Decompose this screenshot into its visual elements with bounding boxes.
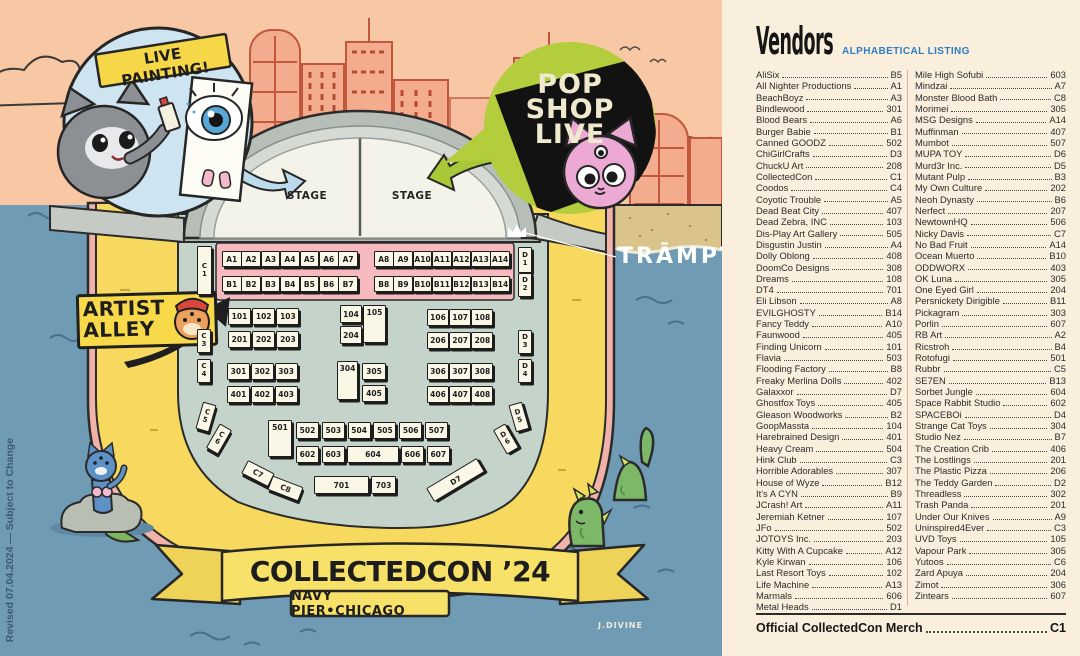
booth-B12: B12 bbox=[452, 276, 472, 292]
vendor-booth: A7 bbox=[1055, 81, 1066, 90]
vendor-name: Life Machine bbox=[756, 580, 809, 589]
vendor-row: JFo502 bbox=[756, 521, 902, 532]
official-merch-row: Official CollectedCon Merch C1 bbox=[756, 621, 1066, 635]
dot-leader bbox=[814, 133, 888, 134]
booth-A2: A2 bbox=[241, 251, 261, 267]
vendor-name: Kyle Kirwan bbox=[756, 557, 806, 566]
vendor-row: Sorbet Jungle604 bbox=[915, 385, 1066, 396]
dot-leader bbox=[840, 235, 883, 236]
booth-A12: A12 bbox=[452, 251, 472, 267]
booth-B1: B1 bbox=[222, 276, 242, 292]
vendor-row: Zard Apuya204 bbox=[915, 566, 1066, 577]
vendor-name: Heavy Cream bbox=[756, 444, 813, 453]
dot-leader bbox=[846, 553, 882, 554]
vendor-row: BeachBoyzA3 bbox=[756, 91, 902, 102]
vendor-name: NewtownHQ bbox=[915, 217, 968, 226]
vendor-booth: 305 bbox=[1050, 104, 1066, 113]
vendor-name: Trash Panda bbox=[915, 500, 968, 509]
booth-408: 408 bbox=[471, 386, 493, 403]
vendor-booth: 204 bbox=[1050, 285, 1066, 294]
dot-leader bbox=[828, 519, 884, 520]
vendor-booth: D6 bbox=[1054, 149, 1066, 158]
dot-leader bbox=[993, 519, 1052, 520]
booth-B10: B10 bbox=[413, 276, 433, 292]
dot-leader bbox=[971, 507, 1047, 508]
vendor-booth: 204 bbox=[1050, 568, 1066, 577]
vendor-name: Flavia bbox=[756, 353, 781, 362]
vendor-booth: A12 bbox=[885, 546, 902, 555]
vendor-row: JCrash! ArtA11 bbox=[756, 498, 902, 509]
vendor-booth: 108 bbox=[886, 274, 902, 283]
vendor-booth: 208 bbox=[886, 161, 902, 170]
vendor-row: OK Luna305 bbox=[915, 272, 1066, 283]
booth-208: 208 bbox=[471, 332, 493, 349]
revision-note: Revised 07.04.2024 — Subject to Change bbox=[4, 438, 16, 642]
booth-A10: A10 bbox=[413, 251, 433, 267]
vendor-booth: 406 bbox=[1050, 444, 1066, 453]
vendor-name: Galaxxor bbox=[756, 387, 794, 396]
vendor-booth: B5 bbox=[891, 70, 902, 79]
booth-A6: A6 bbox=[319, 251, 339, 267]
vendor-row: Pickagram303 bbox=[915, 306, 1066, 317]
vendor-booth: D3 bbox=[890, 149, 902, 158]
vendor-row: ODDWORX403 bbox=[915, 261, 1066, 272]
vendor-row: Flooding FactoryB8 bbox=[756, 363, 902, 374]
vendor-booth: 105 bbox=[1050, 534, 1066, 543]
vendor-row: Bindlewood301 bbox=[756, 102, 902, 113]
vendor-booth: 407 bbox=[886, 206, 902, 215]
vendor-booth: B1 bbox=[891, 127, 902, 136]
booth-402: 402 bbox=[251, 386, 274, 403]
vendor-name: Dis-Play Art Gallery bbox=[756, 229, 837, 238]
vendor-name: ChuckU Art bbox=[756, 161, 803, 170]
vendor-row: RicstrohB4 bbox=[915, 340, 1066, 351]
vendor-booth: 604 bbox=[1050, 387, 1066, 396]
vendor-booth: 502 bbox=[886, 138, 902, 147]
vendor-booth: A11 bbox=[886, 500, 902, 509]
vendor-booth: 107 bbox=[886, 512, 902, 521]
vendor-row: CoodosC4 bbox=[756, 181, 902, 192]
vendor-row: No Bad FruitA14 bbox=[915, 238, 1066, 249]
vendor-name: Ocean Muerto bbox=[915, 251, 974, 260]
dot-leader bbox=[836, 473, 883, 474]
dot-leader bbox=[995, 485, 1051, 486]
vendor-name: UVD Toys bbox=[915, 534, 957, 543]
vendor-name: Flooding Factory bbox=[756, 364, 826, 373]
vendor-row: Monster Blood BathC8 bbox=[915, 91, 1066, 102]
dot-leader bbox=[977, 201, 1052, 202]
official-merch-booth: C1 bbox=[1050, 621, 1066, 635]
vendor-row: The Teddy GardenD2 bbox=[915, 476, 1066, 487]
dot-leader bbox=[965, 417, 1051, 418]
vendor-name: GoopMassta bbox=[756, 421, 809, 430]
vendor-booth: 402 bbox=[886, 376, 902, 385]
vendor-row: Neoh DynastyB6 bbox=[915, 193, 1066, 204]
vendor-name: Kitty With A Cupcake bbox=[756, 546, 843, 555]
booth-D2: D 2 bbox=[518, 273, 532, 297]
vendor-row: House of WyzeB12 bbox=[756, 476, 902, 487]
vendor-booth: 405 bbox=[886, 330, 902, 339]
booth-403: 403 bbox=[275, 386, 298, 403]
vendor-name: Zard Apuya bbox=[915, 568, 963, 577]
dot-leader bbox=[777, 292, 884, 293]
booth-C4: C 4 bbox=[197, 359, 211, 383]
vendor-booth: B3 bbox=[1055, 172, 1066, 181]
dot-leader bbox=[829, 371, 888, 372]
vendor-name: Mutant Pulp bbox=[915, 172, 965, 181]
vendor-name: Mile High Sofubi bbox=[915, 70, 983, 79]
official-merch-label: Official CollectedCon Merch bbox=[756, 621, 923, 635]
dot-leader bbox=[812, 609, 887, 610]
vendor-name: DT4 bbox=[756, 285, 774, 294]
dot-leader bbox=[951, 111, 1047, 112]
vendor-name: Jeremiah Ketner bbox=[756, 512, 825, 521]
vendor-booth: D4 bbox=[1054, 410, 1066, 419]
vendor-name: ODDWORX bbox=[915, 263, 965, 272]
vendor-name: Yutoos bbox=[915, 557, 944, 566]
dot-leader bbox=[854, 88, 887, 89]
vendor-row: One Eyed Girl204 bbox=[915, 283, 1066, 294]
vendor-name: Eli Libson bbox=[756, 296, 797, 305]
booth-107: 107 bbox=[449, 309, 471, 326]
vendor-booth: 207 bbox=[1050, 206, 1066, 215]
vendor-booth: 506 bbox=[1050, 217, 1066, 226]
booth-106: 106 bbox=[427, 309, 449, 326]
vendor-row: Murd3r Inc.D5 bbox=[915, 159, 1066, 170]
vendor-row: Mile High Sofubi603 bbox=[915, 68, 1066, 79]
vendor-name: Strange Cat Toys bbox=[915, 421, 987, 430]
dot-leader bbox=[949, 383, 1047, 384]
booth-B14: B14 bbox=[490, 276, 510, 292]
vendor-name: One Eyed Girl bbox=[915, 285, 974, 294]
vendor-booth: 203 bbox=[886, 534, 902, 543]
dot-leader bbox=[985, 190, 1047, 191]
vendor-booth: A10 bbox=[885, 319, 902, 328]
vendor-row: Porlin607 bbox=[915, 317, 1066, 328]
vendor-name: Fancy Teddy bbox=[756, 319, 809, 328]
vendor-row: Marmals606 bbox=[756, 589, 902, 600]
vendor-name: House of Wyze bbox=[756, 478, 819, 487]
vendor-booth: D2 bbox=[1054, 478, 1066, 487]
booth-602: 602 bbox=[296, 446, 319, 463]
vendor-row: Hink ClubC3 bbox=[756, 453, 902, 464]
vendor-row: MSG DesignsA14 bbox=[915, 113, 1066, 124]
vendor-name: Rubbr bbox=[915, 364, 941, 373]
booth-304: 304 bbox=[337, 361, 358, 400]
vendor-row: The Plastic Pizza206 bbox=[915, 464, 1066, 475]
dot-leader bbox=[816, 451, 883, 452]
vendor-booth: 102 bbox=[886, 568, 902, 577]
booth-405: 405 bbox=[362, 385, 386, 402]
dot-leader bbox=[955, 281, 1047, 282]
vendor-booth: B12 bbox=[885, 478, 902, 487]
artist-alley-label: ARTIST ALLEY bbox=[82, 297, 179, 342]
vendor-booth: C3 bbox=[1054, 523, 1066, 532]
vendor-row: Under Our KnivesA9 bbox=[915, 510, 1066, 521]
vendor-name: Morimei bbox=[915, 104, 948, 113]
booth-305: 305 bbox=[362, 363, 386, 380]
event-location: NAVY PIER•CHICAGO bbox=[291, 591, 449, 616]
vendor-name: RB Art bbox=[915, 330, 942, 339]
vendor-booth: 701 bbox=[886, 285, 902, 294]
booth-103: 103 bbox=[276, 308, 299, 325]
vendor-booth: 304 bbox=[1050, 421, 1066, 430]
vendor-booth: C4 bbox=[890, 183, 902, 192]
vendor-name: SE7EN bbox=[915, 376, 946, 385]
vendor-row: Zimot306 bbox=[915, 578, 1066, 589]
dot-leader bbox=[801, 496, 888, 497]
vendor-name: Dolly Oblong bbox=[756, 251, 810, 260]
vendor-row: Freaky Merlina Dolls402 bbox=[756, 374, 902, 385]
booth-307: 307 bbox=[449, 363, 471, 380]
vendor-row: RB ArtA2 bbox=[915, 329, 1066, 340]
vendor-name: Under Our Knives bbox=[915, 512, 990, 521]
vendor-name: JCrash! Art bbox=[756, 500, 802, 509]
vendor-name: Nicky Davis bbox=[915, 229, 964, 238]
vendor-columns: AliSixB5All Nighter ProductionsA1BeachBo… bbox=[756, 68, 1066, 612]
dot-leader bbox=[971, 247, 1047, 248]
vendor-name: Metal Heads bbox=[756, 602, 809, 611]
vendor-name: Porlin bbox=[915, 319, 939, 328]
vendor-booth: A4 bbox=[891, 240, 902, 249]
booth-507: 507 bbox=[425, 422, 448, 439]
vendor-row: Last Resort Toys102 bbox=[756, 566, 902, 577]
vendor-name: JOTOYS Inc. bbox=[756, 534, 811, 543]
vendor-name: Zintears bbox=[915, 591, 949, 600]
vendor-row: Metal HeadsD1 bbox=[756, 600, 902, 611]
dot-leader bbox=[814, 541, 883, 542]
vendor-name: Coyotic Trouble bbox=[756, 195, 821, 204]
dot-leader bbox=[782, 77, 887, 78]
booth-302: 302 bbox=[251, 363, 274, 380]
booth-603: 603 bbox=[322, 446, 345, 463]
vendor-row: Coyotic TroubleA5 bbox=[756, 193, 902, 204]
dot-leader bbox=[800, 303, 888, 304]
dot-leader bbox=[971, 224, 1048, 225]
vendor-name: It's A CYN bbox=[756, 489, 798, 498]
stage-right-label: STAGE bbox=[386, 190, 438, 202]
booth-A13: A13 bbox=[471, 251, 491, 267]
dot-leader bbox=[964, 496, 1047, 497]
dot-leader bbox=[987, 530, 1051, 531]
dot-leader bbox=[1003, 303, 1047, 304]
booth-D1: D 1 bbox=[518, 247, 532, 273]
vendor-booth: 507 bbox=[1050, 138, 1066, 147]
vendor-name: My Own Culture bbox=[915, 183, 982, 192]
booth-701: 701 bbox=[314, 476, 369, 494]
vendor-name: Sorbet Jungle bbox=[915, 387, 973, 396]
booth-503: 503 bbox=[322, 422, 345, 439]
vendor-booth: 305 bbox=[1050, 274, 1066, 283]
vendor-booth: A9 bbox=[1055, 512, 1066, 521]
dot-leader bbox=[832, 269, 883, 270]
vendor-row: My Own Culture202 bbox=[915, 181, 1066, 192]
vendor-booth: 104 bbox=[886, 421, 902, 430]
dot-leader bbox=[797, 394, 888, 395]
dot-leader bbox=[942, 326, 1047, 327]
dot-leader bbox=[962, 133, 1048, 134]
vendor-row: Persnickety DirigibleB11 bbox=[915, 295, 1066, 306]
vendor-booth: 606 bbox=[886, 591, 902, 600]
vendor-row: DoomCo Designs308 bbox=[756, 261, 902, 272]
vendor-booth: B4 bbox=[1055, 342, 1066, 351]
vendor-booth: 206 bbox=[1050, 466, 1066, 475]
booth-B3: B3 bbox=[261, 276, 281, 292]
vendor-name: Ghostfox Toys bbox=[756, 398, 815, 407]
dot-leader bbox=[825, 247, 888, 248]
dot-leader bbox=[977, 258, 1046, 259]
vendor-name: Burger Babie bbox=[756, 127, 811, 136]
vendor-row: RubbrC5 bbox=[915, 363, 1066, 374]
vendor-name: No Bad Fruit bbox=[915, 240, 968, 249]
dot-leader bbox=[952, 598, 1047, 599]
vendor-name: Dead Beat City bbox=[756, 206, 819, 215]
vendor-row: Space Rabbit Studio602 bbox=[915, 397, 1066, 408]
vendor-name: SPACEBOi bbox=[915, 410, 962, 419]
dot-leader bbox=[792, 281, 884, 282]
vendor-name: Coodos bbox=[756, 183, 788, 192]
vendors-title: Vendors bbox=[756, 22, 833, 60]
booth-B6: B6 bbox=[319, 276, 339, 292]
dot-leader bbox=[1000, 99, 1051, 100]
booth-504: 504 bbox=[348, 422, 371, 439]
vendor-booth: 302 bbox=[1050, 489, 1066, 498]
booth-505: 505 bbox=[373, 422, 396, 439]
vendor-row: Harebrained Design401 bbox=[756, 431, 902, 442]
vendor-row: Trash Panda201 bbox=[915, 498, 1066, 509]
vendor-booth: 201 bbox=[1050, 455, 1066, 464]
vendor-booth: 307 bbox=[886, 466, 902, 475]
vendor-row: Jeremiah Ketner107 bbox=[756, 510, 902, 521]
booth-406: 406 bbox=[427, 386, 449, 403]
dot-leader bbox=[784, 360, 883, 361]
vendor-row: The Creation Crib406 bbox=[915, 442, 1066, 453]
vendor-name: All Nighter Productions bbox=[756, 81, 851, 90]
vendor-name: JFo bbox=[756, 523, 772, 532]
vendor-booth: D5 bbox=[1054, 161, 1066, 170]
booth-A5: A5 bbox=[300, 251, 320, 267]
booth-A9: A9 bbox=[393, 251, 413, 267]
dot-leader bbox=[829, 145, 884, 146]
dot-leader bbox=[969, 553, 1047, 554]
vendor-name: AliSix bbox=[756, 70, 779, 79]
vendor-booth: D1 bbox=[890, 602, 902, 611]
vendor-row: Dis-Play Art Gallery505 bbox=[756, 227, 902, 238]
vendor-row: Life MachineA13 bbox=[756, 578, 902, 589]
vendor-row: Kitty With A CupcakeA12 bbox=[756, 544, 902, 555]
dot-leader bbox=[819, 315, 882, 316]
vendor-row: GoopMassta104 bbox=[756, 419, 902, 430]
booth-108: 108 bbox=[471, 309, 493, 326]
vendor-booth: A14 bbox=[1049, 240, 1066, 249]
vendor-list-panel: Vendors ALPHABETICAL LISTING AliSixB5All… bbox=[722, 0, 1080, 656]
dot-leader bbox=[830, 224, 883, 225]
dot-leader bbox=[822, 213, 883, 214]
vendor-booth: 504 bbox=[886, 444, 902, 453]
dot-leader bbox=[964, 439, 1052, 440]
vendor-booth: B14 bbox=[885, 308, 902, 317]
vendor-booth: B8 bbox=[891, 364, 902, 373]
dot-leader bbox=[845, 417, 887, 418]
vendor-booth: 607 bbox=[1050, 319, 1066, 328]
dot-leader bbox=[810, 122, 887, 123]
vendor-booth: 308 bbox=[886, 263, 902, 272]
dot-leader bbox=[977, 292, 1047, 293]
booth-506: 506 bbox=[399, 422, 422, 439]
booth-306: 306 bbox=[427, 363, 449, 380]
dot-leader bbox=[813, 258, 884, 259]
vendor-name: MUPA TOY bbox=[915, 149, 962, 158]
vendor-booth: B11 bbox=[1050, 296, 1066, 305]
dot-leader bbox=[966, 575, 1047, 576]
vendor-booth: 103 bbox=[886, 217, 902, 226]
vendor-row: It's A CYNB9 bbox=[756, 487, 902, 498]
vendor-row: Fancy TeddyA10 bbox=[756, 317, 902, 328]
vendor-column-left: AliSixB5All Nighter ProductionsA1BeachBo… bbox=[756, 68, 902, 612]
vendor-row: Faunwood405 bbox=[756, 329, 902, 340]
vendor-name: Persnickety Dirigible bbox=[915, 296, 1000, 305]
booth-B13: B13 bbox=[471, 276, 491, 292]
vendor-booth: 505 bbox=[886, 229, 902, 238]
dot-leader bbox=[976, 122, 1046, 123]
vendor-name: Zimot bbox=[915, 580, 938, 589]
booth-A8: A8 bbox=[374, 251, 394, 267]
dot-leader bbox=[947, 564, 1051, 565]
dot-leader bbox=[953, 360, 1047, 361]
vendor-booth: 106 bbox=[886, 557, 902, 566]
vendor-name: Murd3r Inc. bbox=[915, 161, 962, 170]
vendor-row: DT4701 bbox=[756, 283, 902, 294]
vendor-row: Dreams108 bbox=[756, 272, 902, 283]
vendor-row: Gleason WoodworksB2 bbox=[756, 408, 902, 419]
vendor-name: Monster Blood Bath bbox=[915, 93, 997, 102]
dot-leader bbox=[803, 337, 884, 338]
vendors-subtitle: ALPHABETICAL LISTING bbox=[842, 46, 970, 57]
booth-B8: B8 bbox=[374, 276, 394, 292]
booth-301: 301 bbox=[227, 363, 250, 380]
dot-leader bbox=[806, 167, 883, 168]
vendor-row: Vapour Park305 bbox=[915, 544, 1066, 555]
booth-303: 303 bbox=[275, 363, 298, 380]
vendor-name: Neoh Dynasty bbox=[915, 195, 974, 204]
vendor-name: Muffinman bbox=[915, 127, 959, 136]
vendor-name: BeachBoyz bbox=[756, 93, 803, 102]
booth-501: 501 bbox=[268, 420, 292, 457]
booth-104: 104 bbox=[340, 305, 362, 323]
dot-leader bbox=[829, 575, 884, 576]
vendor-booth: 607 bbox=[1050, 591, 1066, 600]
vendor-booth: B6 bbox=[1055, 195, 1066, 204]
column-divider bbox=[907, 70, 908, 606]
booth-101: 101 bbox=[228, 308, 251, 325]
vendor-booth: 502 bbox=[886, 523, 902, 532]
booth-D3: D 3 bbox=[518, 330, 532, 354]
vendor-booth: 101 bbox=[886, 342, 902, 351]
booth-A7: A7 bbox=[338, 251, 358, 267]
vendor-row: Canned GOODZ502 bbox=[756, 136, 902, 147]
booth-607: 607 bbox=[427, 446, 450, 463]
dot-leader bbox=[807, 111, 883, 112]
floor-map: LIVE PAINTING! POP SHOP LIVE STAGE STAGE… bbox=[0, 0, 722, 656]
vendor-row: Ghostfox Toys405 bbox=[756, 397, 902, 408]
vendor-booth: 201 bbox=[1050, 500, 1066, 509]
booth-606: 606 bbox=[401, 446, 424, 463]
booth-105: 105 bbox=[363, 305, 386, 343]
vendor-name: The Creation Crib bbox=[915, 444, 989, 453]
dot-leader bbox=[941, 587, 1047, 588]
vendor-name: Studio Nez bbox=[915, 432, 961, 441]
pop-shop-live-logo: POP SHOP LIVE bbox=[517, 72, 623, 147]
